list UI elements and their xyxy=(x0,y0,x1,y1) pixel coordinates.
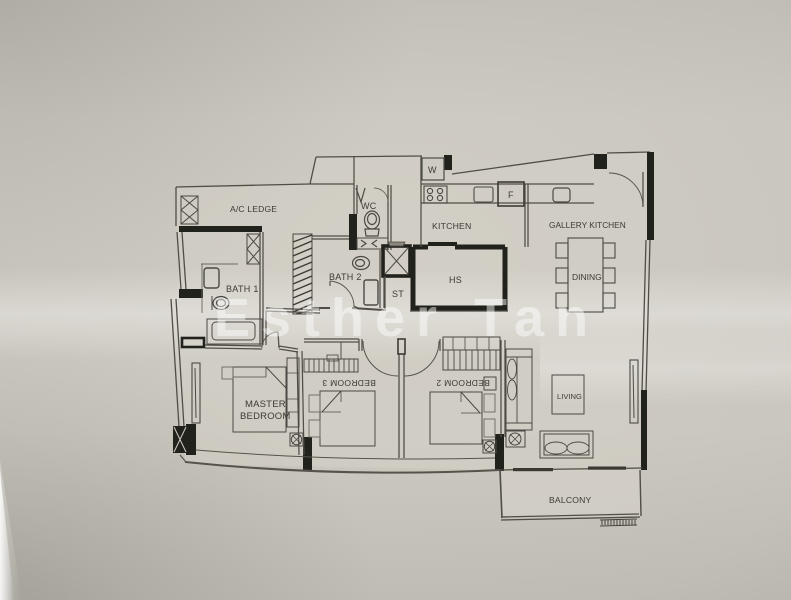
svg-text:BATH 2: BATH 2 xyxy=(329,272,362,282)
svg-text:WC: WC xyxy=(361,201,377,211)
svg-text:W: W xyxy=(428,165,437,175)
svg-text:DINING: DINING xyxy=(572,272,602,282)
svg-text:F: F xyxy=(508,190,514,200)
svg-text:MASTER: MASTER xyxy=(245,399,286,410)
svg-text:BEDROOM 2: BEDROOM 2 xyxy=(436,378,490,388)
svg-text:GALLERY KITCHEN: GALLERY KITCHEN xyxy=(549,220,626,230)
svg-text:HS: HS xyxy=(449,275,462,285)
svg-text:BEDROOM: BEDROOM xyxy=(240,411,291,422)
svg-text:BEDROOM 3: BEDROOM 3 xyxy=(322,378,376,388)
svg-text:A/C LEDGE: A/C LEDGE xyxy=(230,204,277,214)
svg-text:Esther Tan: Esther Tan xyxy=(214,288,599,348)
svg-text:KITCHEN: KITCHEN xyxy=(432,221,472,231)
svg-text:LIVING: LIVING xyxy=(557,392,582,401)
svg-text:BALCONY: BALCONY xyxy=(549,495,592,505)
